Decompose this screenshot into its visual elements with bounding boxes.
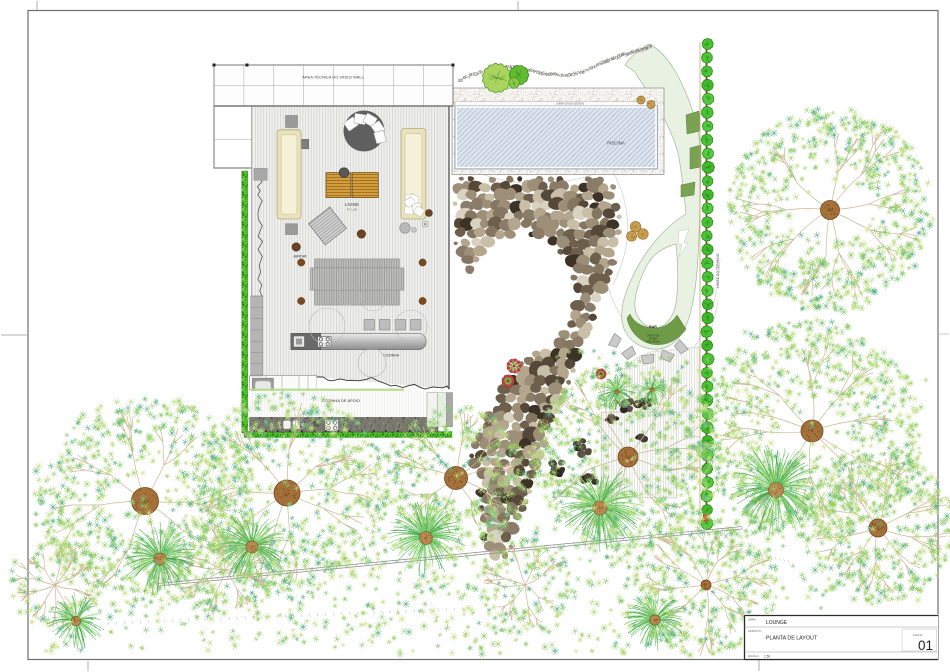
svg-text:LIMITE DO TERRENO: LIMITE DO TERRENO [716,253,720,288]
svg-text:01: 01 [918,638,933,653]
svg-text:PE 1,10M: PE 1,10M [347,210,357,212]
svg-text:COZINHA: COZINHA [383,354,400,358]
svg-text:TAPETE DE: TAPETE DE [647,335,660,338]
svg-text:JANTAR: JANTAR [293,255,307,259]
svg-text:BAR: BAR [649,325,657,329]
svg-text:AVELUDADA: AVELUDADA [646,341,660,344]
svg-text:FOLHA: FOLHA [913,633,922,637]
svg-text:LOUNGE: LOUNGE [766,620,788,626]
svg-text:LAMINA D'AGUA (BORDA): LAMINA D'AGUA (BORDA) [556,103,584,106]
svg-text:LIVING: LIVING [345,202,359,207]
svg-text:ÁREA TÉCNICA DO VIDEO WALL: ÁREA TÉCNICA DO VIDEO WALL [302,75,364,80]
svg-text:OBRA:: OBRA: [748,618,757,622]
svg-text:ASSUNTO:: ASSUNTO: [748,629,762,633]
svg-text:ESCALA:: ESCALA: [748,654,760,658]
svg-text:GRAMA: GRAMA [649,338,658,341]
svg-text:PISCINA: PISCINA [607,141,625,146]
svg-text:1:50: 1:50 [764,655,770,659]
svg-text:PLANTA DE LAYOUT: PLANTA DE LAYOUT [766,636,818,642]
